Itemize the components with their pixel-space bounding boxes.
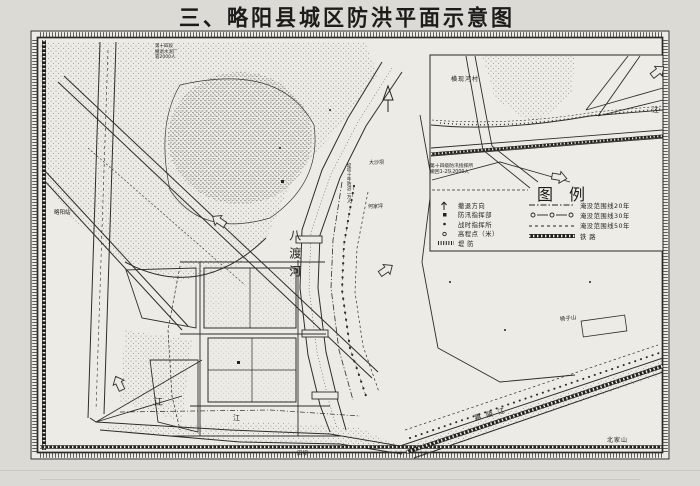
badu-river-label: 八渡河 <box>287 229 301 283</box>
jiang-char-label: 江 <box>233 414 240 422</box>
post-dot-icon <box>438 221 454 227</box>
legend-label: 淹没范围线50年 <box>580 221 630 230</box>
legend-item: 战时指挥所 <box>438 220 499 228</box>
jiang-char-label: 江 <box>154 398 163 408</box>
dashaba-label: 大沙坝 <box>369 161 384 167</box>
beijiashan-label: 北家山 <box>607 438 628 445</box>
legend-right-column: 淹没范围线20年 淹没范围线30年 淹没范围线50年 <box>528 201 630 240</box>
elevation-point <box>279 147 281 149</box>
dike-band-icon <box>438 240 454 246</box>
flood-line-50yr-icon <box>528 222 576 230</box>
elevation-point <box>589 281 591 283</box>
legend-item: 淹没范围线20年 <box>528 201 630 209</box>
inset-note: 第十四级防汛指挥所 撤回1-2队2000人 <box>430 164 473 176</box>
legend-label: 淹没范围线30年 <box>580 211 630 220</box>
legend-label: 高程点（米） <box>458 229 499 238</box>
elevation-circle-icon <box>438 231 454 237</box>
evacuation-note-line: 容2000人 <box>155 55 178 61</box>
elevation-point <box>449 281 451 283</box>
hq-marker <box>281 180 284 183</box>
inset-village-label: 横现河村 <box>451 77 479 84</box>
flood-line-20yr-icon <box>528 201 576 209</box>
elevation-point <box>504 329 506 331</box>
station-label: 略阳站 <box>54 210 71 216</box>
evacuation-arrow-icon <box>438 200 454 210</box>
hq-marker <box>237 361 240 364</box>
legend-label: 堤 防 <box>458 239 474 248</box>
dike-note-label: 堤坝十年防洪二万人 <box>346 163 351 239</box>
inset-note-line: 撤回1-2队2000人 <box>430 170 473 176</box>
legend-label: 防汛指挥部 <box>458 210 492 219</box>
legend-item: 高程点（米） <box>438 230 499 238</box>
legend-left-column: 撤退方向 防汛指挥部 战时指挥所 高程点（米） 堤 防 <box>438 201 499 247</box>
scan-streak <box>40 479 640 480</box>
legend-item: 淹没范围线50年 <box>528 222 630 230</box>
legend-item: 撤退方向 <box>438 201 499 209</box>
legend-label: 战时指挥所 <box>458 220 492 229</box>
legend-item: 防汛指挥部 <box>438 211 499 219</box>
legend-label: 撤退方向 <box>458 201 485 210</box>
inset-jiang-label: 江 <box>652 106 659 114</box>
legend-item: 铁 路 <box>528 232 630 240</box>
legend-item: 堤 防 <box>438 239 499 247</box>
legend-item: 淹没范围线30年 <box>528 211 630 219</box>
flood-line-30yr-icon <box>528 211 576 219</box>
railway-band-icon <box>528 232 576 240</box>
evacuation-note: 第十四段 撤退水泥厂 容2000人 <box>155 44 178 61</box>
hejiaping-label: 何家坪 <box>368 205 383 211</box>
legend-label: 铁 路 <box>580 232 596 241</box>
hq-square-icon <box>438 212 454 218</box>
legend-label: 淹没范围线20年 <box>580 201 630 210</box>
tianba-label: 田坝 <box>297 451 308 457</box>
elevation-point <box>329 109 331 111</box>
scan-streak <box>0 470 700 471</box>
scanned-map-page: 三、略阳县城区防洪平面示意图 <box>0 0 700 486</box>
map-canvas <box>30 30 670 460</box>
